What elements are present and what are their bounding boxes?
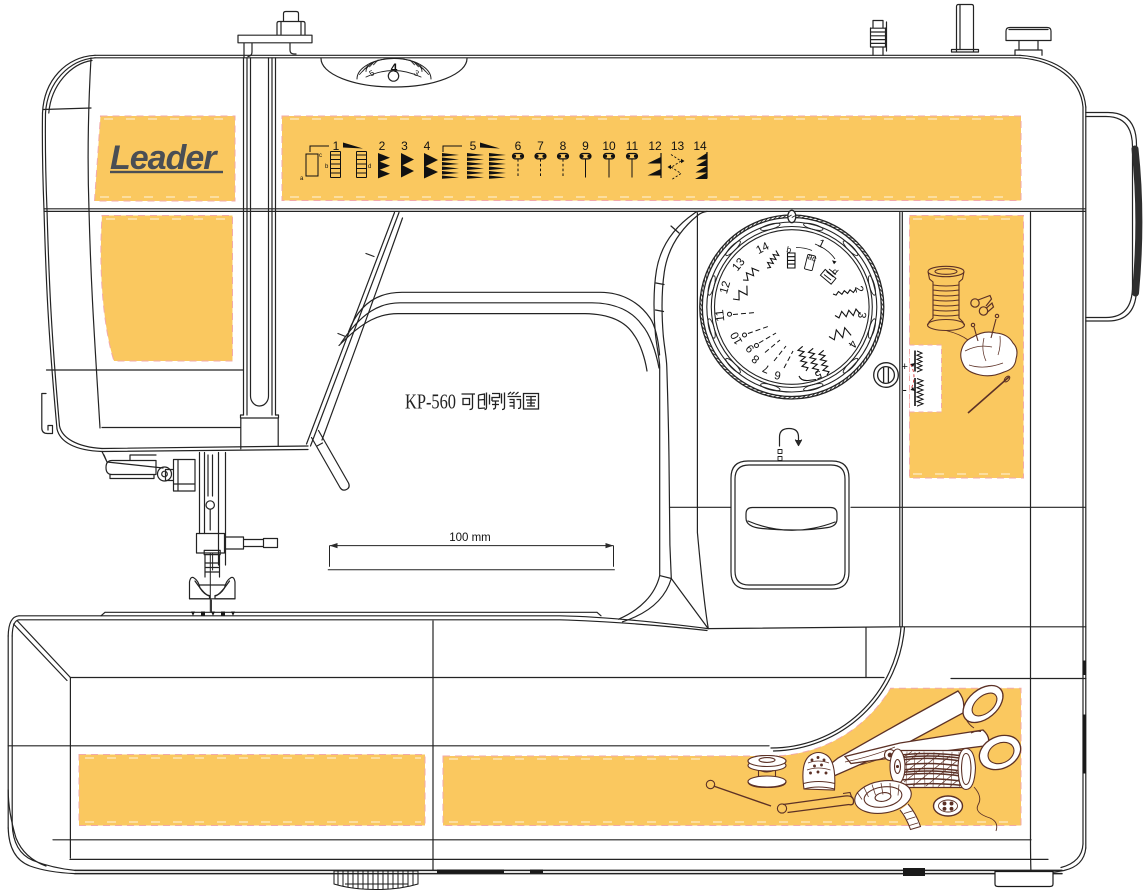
svg-text:6: 6 (515, 139, 522, 153)
svg-text:12: 12 (648, 139, 662, 153)
svg-text:10: 10 (602, 139, 616, 153)
svg-text:1: 1 (333, 139, 340, 153)
svg-text:2: 2 (379, 139, 386, 153)
svg-text:+: + (902, 361, 908, 373)
svg-text:8: 8 (560, 139, 567, 153)
svg-text:-: - (903, 382, 907, 397)
svg-text:7: 7 (537, 139, 544, 153)
svg-text:5: 5 (470, 139, 477, 153)
svg-text:3: 3 (401, 139, 408, 153)
svg-text:9: 9 (582, 139, 589, 153)
svg-text:14: 14 (693, 139, 707, 153)
svg-text:4: 4 (424, 139, 431, 153)
svg-text:KP-560: KP-560 (405, 390, 456, 414)
svg-text:11: 11 (714, 309, 727, 322)
svg-text:4: 4 (391, 61, 398, 75)
svg-text:c: c (319, 153, 322, 159)
svg-text:3: 3 (855, 311, 868, 319)
svg-text:d: d (368, 164, 371, 170)
svg-text:100 mm: 100 mm (449, 532, 491, 544)
svg-text:11: 11 (626, 139, 639, 153)
svg-text:13: 13 (671, 139, 685, 153)
